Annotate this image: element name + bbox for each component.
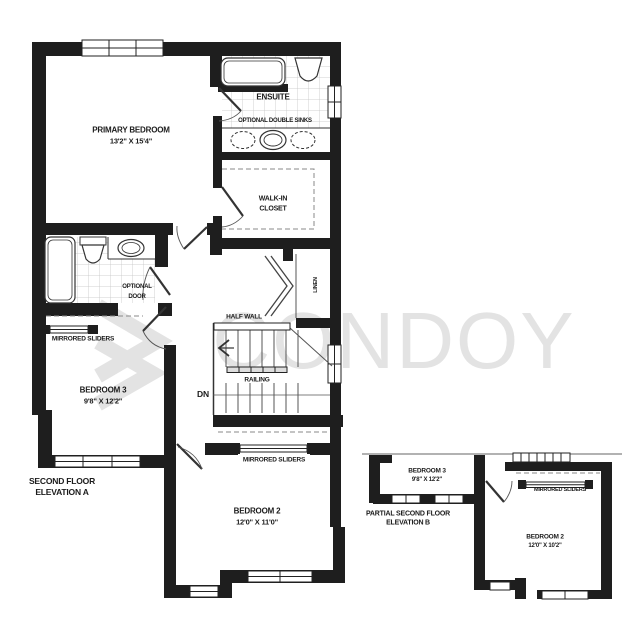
room-label-primary-bedroom: PRIMARY BEDROOM bbox=[92, 126, 169, 135]
room-dims-bedroom2: 12'0" X 11'0" bbox=[236, 518, 278, 527]
bath-toilet bbox=[80, 237, 106, 245]
annotation-down: DN bbox=[197, 389, 209, 399]
window-bedroom3 bbox=[55, 456, 140, 467]
window-top bbox=[82, 40, 163, 56]
bedroom2b-door-leaf bbox=[486, 481, 504, 502]
stair-diagonal bbox=[290, 328, 332, 366]
tile-floors bbox=[75, 56, 330, 303]
plan-a-title-line2: ELEVATION A bbox=[35, 487, 88, 497]
window-b-bed2-bottom bbox=[542, 591, 588, 599]
window-b-bed3-right bbox=[435, 495, 463, 503]
annotation-optional-double-sinks: OPTIONAL DOUBLE SINKS bbox=[238, 118, 312, 124]
window-bedroom2-small bbox=[190, 586, 218, 597]
bifold-door bbox=[265, 256, 287, 316]
annotation-mirrored-sliders-b: MIRRORED SLIDERS bbox=[534, 487, 586, 493]
optional-sink-left bbox=[231, 132, 255, 149]
window-b-bed3-left bbox=[392, 495, 420, 503]
half-wall-bar bbox=[214, 323, 290, 330]
plan-b-title-line1: PARTIAL SECOND FLOOR bbox=[366, 511, 450, 518]
annotation-optional-door-line1: OPTIONAL bbox=[122, 284, 151, 290]
floorplan-page: CONDOY bbox=[0, 0, 640, 628]
window-b-bed2-left bbox=[490, 582, 510, 590]
room-label-bedroom3: BEDROOM 3 bbox=[80, 386, 127, 395]
room-dims-bedroom3: 9'8" X 12'2" bbox=[84, 397, 122, 406]
annotation-railing: RAILING bbox=[244, 377, 269, 384]
stair-treads-lower bbox=[226, 383, 298, 413]
primary-door-leaf bbox=[184, 227, 207, 249]
optional-sink-right bbox=[291, 132, 315, 149]
room-label-bedroom2-b: BEDROOM 2 bbox=[526, 534, 564, 541]
walk-in-door-leaf bbox=[222, 187, 243, 216]
room-label-bedroom3-b: BEDROOM 3 bbox=[408, 468, 446, 475]
room-label-walk-in-closet-line2: CLOSET bbox=[259, 206, 286, 213]
window-b-bed2-top bbox=[513, 453, 570, 462]
linen-closet bbox=[265, 254, 296, 318]
window-bedroom2-main bbox=[248, 571, 312, 582]
bedroom3-door-leaf bbox=[143, 307, 166, 331]
annotation-optional-door-line2: DOOR bbox=[128, 294, 145, 300]
stairs bbox=[213, 323, 332, 415]
partial-plan-walls bbox=[369, 455, 612, 599]
annotation-half-wall: HALF WALL bbox=[226, 314, 262, 321]
window-ensuite-right bbox=[328, 86, 341, 118]
railing-bar bbox=[227, 367, 287, 373]
room-label-bedroom2: BEDROOM 2 bbox=[234, 507, 281, 516]
stair-treads-upper bbox=[226, 330, 298, 367]
room-dims-bedroom3-b: 9'8" X 12'2" bbox=[412, 477, 442, 483]
plan-b-title-line2: ELEVATION B bbox=[386, 520, 430, 527]
plan-a-title-line1: SECOND FLOOR bbox=[29, 476, 95, 486]
room-label-linen: LINEN bbox=[313, 277, 319, 293]
room-dims-primary-bedroom: 13'2" X 15'4" bbox=[110, 137, 152, 146]
annotation-mirrored-sliders-bath: MIRRORED SLIDERS bbox=[52, 336, 114, 343]
room-label-ensuite: ENSUITE bbox=[256, 93, 289, 102]
room-label-walk-in-closet-line1: WALK-IN bbox=[259, 196, 288, 203]
annotation-mirrored-sliders-bedroom2: MIRRORED SLIDERS bbox=[243, 457, 305, 464]
room-dims-bedroom2-b: 12'0" X 10'2" bbox=[528, 543, 561, 549]
